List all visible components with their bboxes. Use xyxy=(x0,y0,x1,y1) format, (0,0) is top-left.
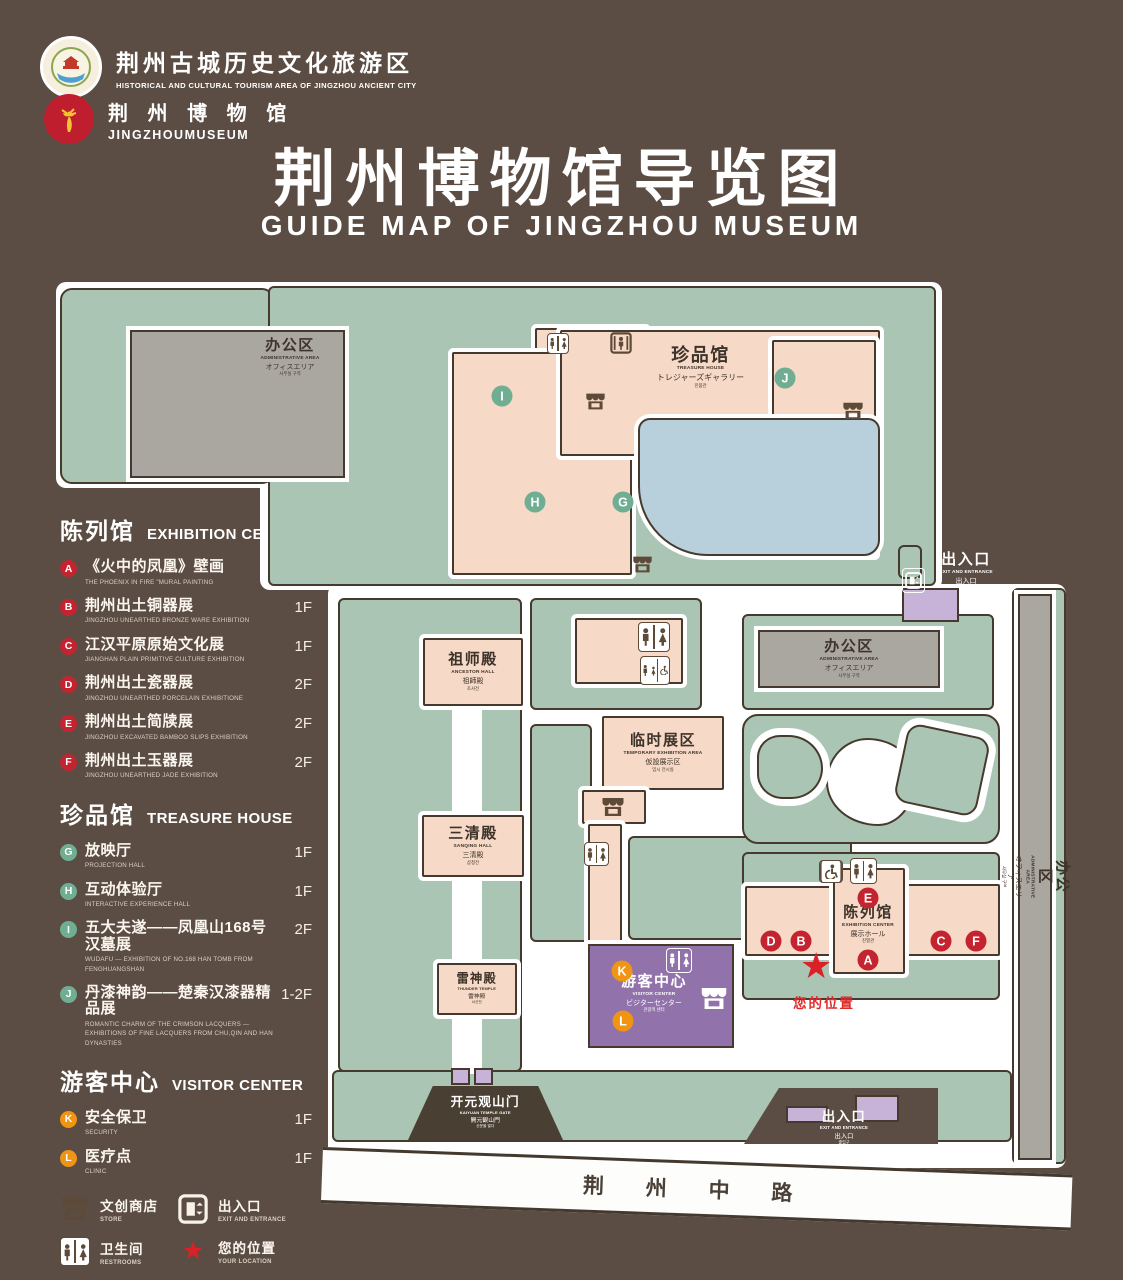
legend-item-en: INTERACTIVE EXPERIENCE HALL xyxy=(85,900,190,909)
legend-item-G: G放映厅PROJECTION HALL1F xyxy=(60,843,312,871)
building-label-cn: 出入口 xyxy=(822,1110,867,1125)
building-label-en: THUNDER TEMPLE xyxy=(458,987,497,991)
building-label-en: EXHIBITION CENTER xyxy=(842,923,894,928)
building-label-cn: 办公区 xyxy=(1036,855,1070,898)
building-label-cn: 三清殿 xyxy=(448,826,498,843)
garden-islet-left xyxy=(757,735,823,799)
map-marker-F: F xyxy=(966,931,987,952)
restroom-icon xyxy=(850,858,877,884)
thunder-temple: 雷神殿THUNDER TEMPLE雷神殿뇌신전 xyxy=(437,963,517,1015)
building-label-jp: オフィスエリア xyxy=(1006,855,1022,898)
building-label-cn: 珍品馆 xyxy=(671,345,730,365)
legend-item-J: J丹漆神韵——楚秦汉漆器精品展ROMANTIC CHARM OF THE CRI… xyxy=(60,985,312,1048)
family-restroom-icon xyxy=(640,656,670,685)
legend-icon-cn: 出入口 xyxy=(218,1195,286,1215)
legend-icon-cn: 文创商店 xyxy=(100,1195,158,1215)
kaiyuan-temple-gate: 开元观山门KAIYUAN TEMPLE GATE開元観山門산문을 열다 xyxy=(408,1086,563,1140)
map-marker-L: L xyxy=(613,1011,634,1032)
legend-item-en: PROJECTION HALL xyxy=(85,861,145,870)
building-label-en: KAIYUAN TEMPLE GATE xyxy=(460,1111,511,1116)
garden-islet-right xyxy=(893,722,992,818)
legend-item-L: L医疗点CLINIC1F xyxy=(60,1149,312,1177)
legend-item-floor: 2F xyxy=(294,921,312,938)
building-label-en: TEMPORARY EXHIBITION AREA xyxy=(624,751,703,756)
map-marker-B: B xyxy=(791,931,812,952)
legend-icon-cn: 您的位置 xyxy=(218,1237,276,1257)
admin-building-right: 办公区ADMINISTRATIVE AREAオフィスエリア사무실 구역 xyxy=(758,630,940,688)
legend-item-en: JINGZHOU UNEARTHED BRONZE WARE EXHIBITIO… xyxy=(85,616,249,625)
map-marker-H: H xyxy=(525,492,546,513)
page-title-cn: 荆州博物馆导览图 xyxy=(0,128,1123,218)
section-title-cn: 陈列馆 xyxy=(60,512,135,546)
legend-item-cn: 《火中的凤凰》壁画 xyxy=(85,559,225,576)
map-marker-K: K xyxy=(612,961,633,982)
building-label-en: SANQING HALL xyxy=(454,844,493,849)
legend-item-D: D荆州出土瓷器展JINGZHOU UNEARTHED PORCELAIN EXH… xyxy=(60,675,312,703)
building-label-cn: 开元观山门 xyxy=(451,1096,520,1110)
legend-item-cn: 荆州出土简牍展 xyxy=(85,714,248,731)
building-label-en: ANCESTOR HALL xyxy=(451,670,495,675)
restroom-icon xyxy=(547,333,569,354)
thunder-temple-label: 雷神殿THUNDER TEMPLE雷神殿뇌신전 xyxy=(457,973,498,1005)
your-location-label: 您的位置 xyxy=(778,992,870,1012)
museum-name-cn: 荆 州 博 物 馆 xyxy=(108,97,293,126)
restroom-icon xyxy=(584,842,609,866)
temporary-exhibition-area: 临时展区TEMPORARY EXHIBITION AREA仮設展示区임시 전시실 xyxy=(602,716,724,790)
visitor-center-label: 游客中心VISITOR CENTERビジターセンター관광객 센터 xyxy=(598,974,710,1013)
building-label-en: TREASURE HOUSE xyxy=(677,366,725,371)
legend-marker-E: E xyxy=(60,715,77,732)
map-marker-G: G xyxy=(613,492,634,513)
tourism-area-name-cn: 荆州古城历史文化旅游区 xyxy=(116,44,417,78)
legend-item-floor: 1F xyxy=(294,1150,312,1167)
your-location-star: ★ xyxy=(800,948,832,984)
building-label-kr: 조사전 xyxy=(467,687,479,692)
legend-marker-C: C xyxy=(60,638,77,655)
legend-icon-item-exit: 出入口EXIT AND ENTRANCE xyxy=(178,1194,286,1223)
legend-item-en: JIANGHAN PLAIN PRIMITIVE CULTURE EXHIBIT… xyxy=(85,655,244,664)
restroom-icon xyxy=(60,1237,90,1266)
walkway xyxy=(452,874,482,967)
pond xyxy=(638,418,880,556)
store-icon xyxy=(585,391,606,411)
legend-item-en: SECURITY xyxy=(85,1128,147,1137)
legend-marker-D: D xyxy=(60,676,77,693)
restroom-icon xyxy=(638,622,670,652)
building-label-kr: 출입구 xyxy=(839,1141,850,1145)
building-label-en: ADMINISTRATIVE AREA xyxy=(261,356,320,361)
legend-item-floor: 2F xyxy=(294,754,312,771)
exit-icon xyxy=(902,568,925,593)
legend-item-floor: 2F xyxy=(294,715,312,732)
legend-item-C: C江汉平原原始文化展JIANGHAN PLAIN PRIMITIVE CULTU… xyxy=(60,637,312,665)
gate-pillar xyxy=(451,1068,470,1085)
admin-building-strip: 办公区ADMINISTRATIVE AREAオフィスエリア사무실 구역 xyxy=(1018,594,1052,1160)
legend-item-F: F荆州出土玉器展JINGZHOU UNEARTHED JADE EXHIBITI… xyxy=(60,753,312,781)
legend-marker-H: H xyxy=(60,883,77,900)
legend-item-E: E荆州出土简牍展JINGZHOU EXCAVATED BAMBOO SLIPS … xyxy=(60,714,312,742)
building-label-kr: 사무실 구역 xyxy=(838,674,859,679)
admin-label: 办公区ADMINISTRATIVE AREAオフィスエリア사무실 구역 xyxy=(1000,855,1069,898)
elevator-icon xyxy=(610,332,632,353)
legend-item-cn: 荆州出土铜器展 xyxy=(85,598,249,615)
legend-item-en: ROMANTIC CHARM OF THE CRIMSON LACQUERS —… xyxy=(85,1020,278,1048)
building-label-kr: 진열관 xyxy=(862,939,874,944)
sanqing-hall: 三清殿SANQING HALL三清殿삼청전 xyxy=(422,815,524,877)
legend-marker-B: B xyxy=(60,599,77,616)
legend-item-en: THE PHOENIX IN FIRE "MURAL PAINTING xyxy=(85,578,225,587)
legend-item-cn: 荆州出土玉器展 xyxy=(85,753,218,770)
legend-item-floor: 1-2F xyxy=(281,986,312,1003)
building-label-kr: 진품관 xyxy=(694,384,706,389)
legend-item-floor: 1F xyxy=(294,883,312,900)
legend-section-header: 游客中心VISITOR CENTER xyxy=(60,1063,312,1097)
admin-label: 办公区ADMINISTRATIVE AREAオフィスエリア사무실 구역 xyxy=(240,338,340,377)
building-label-en: EXIT AND ENTRANCE xyxy=(939,570,993,575)
poster: 荆州古城历史文化旅游区 HISTORICAL AND CULTURAL TOUR… xyxy=(0,0,1123,1280)
store-icon xyxy=(700,985,728,1012)
map-marker-E: E xyxy=(858,888,879,909)
legend-item-cn: 荆州出土瓷器展 xyxy=(85,675,243,692)
treasure-house-label: 珍品馆TREASURE HOUSEトレジャーズギャラリー진품관 xyxy=(608,345,793,389)
legend-marker-G: G xyxy=(60,844,77,861)
temporary-exhibition-label: 临时展区TEMPORARY EXHIBITION AREA仮設展示区임시 전시실 xyxy=(624,733,703,772)
building-label-kr: 산문을 열다 xyxy=(476,1125,494,1129)
page-title-en: GUIDE MAP OF JINGZHOU MUSEUM xyxy=(0,210,1123,242)
store-icon xyxy=(632,554,653,574)
building-label-en: ADMINISTRATIVE AREA xyxy=(1024,855,1035,898)
legend-item-cn: 互动体验厅 xyxy=(85,882,190,899)
legend-item-cn: 五大夫遂——凤凰山168号汉墓展 xyxy=(85,920,278,953)
legend-marker-J: J xyxy=(60,986,77,1003)
legend-sidebar: 陈列馆EXHIBITION CENTERA《火中的凤凰》壁画THE PHOENI… xyxy=(60,497,312,1280)
legend-item-en: JINGZHOU UNEARTHED JADE EXHIBITION xyxy=(85,771,218,780)
legend-item-cn: 放映厅 xyxy=(85,843,145,860)
map-marker-C: C xyxy=(931,931,952,952)
tourism-area-logo-icon xyxy=(40,36,102,98)
section-title-cn: 珍品馆 xyxy=(60,796,135,830)
legend-sections: 陈列馆EXHIBITION CENTERA《火中的凤凰》壁画THE PHOENI… xyxy=(60,512,312,1176)
legend-icon-en: YOUR LOCATION xyxy=(218,1259,276,1265)
building-label-kr: 임시 전시실 xyxy=(652,768,673,773)
legend-icon-en: EXIT AND ENTRANCE xyxy=(218,1217,286,1223)
admin-label: 办公区ADMINISTRATIVE AREAオフィスエリア사무실 구역 xyxy=(820,639,879,678)
legend-item-en: CLINIC xyxy=(85,1167,132,1176)
legend-item-cn: 医疗点 xyxy=(85,1149,132,1166)
building-label-kr: 사무실 구역 xyxy=(279,372,300,377)
building-label-jp: 三清殿 xyxy=(462,852,483,860)
legend-section-header: 珍品馆TREASURE HOUSE xyxy=(60,796,312,830)
legend-marker-K: K xyxy=(60,1111,77,1128)
legend-marker-L: L xyxy=(60,1150,77,1167)
building-label-cn: 祖师殿 xyxy=(448,652,498,669)
legend-item-floor: 1F xyxy=(294,1111,312,1128)
legend-item-I: I五大夫遂——凤凰山168号汉墓展WUDAFU — EXHIBITION OF … xyxy=(60,920,312,974)
road-label: 荆 州 中 路 xyxy=(582,1170,810,1208)
north-gate-structure xyxy=(902,588,959,622)
building-label-kr: 사무실 구역 xyxy=(1000,866,1005,887)
legend-icon-en: RESTROOMS xyxy=(100,1260,144,1266)
legend-item-cn: 丹漆神韵——楚秦汉漆器精品展 xyxy=(85,985,278,1018)
legend-item-H: H互动体验厅INTERACTIVE EXPERIENCE HALL1F xyxy=(60,882,312,910)
legend-item-cn: 安全保卫 xyxy=(85,1110,147,1127)
building-label-cn: 雷神殿 xyxy=(457,973,498,987)
legend-icon-item-store: 文创商店STORE xyxy=(60,1194,158,1223)
gate-pillar xyxy=(474,1068,493,1085)
building-label-kr: 출입구 xyxy=(960,586,972,591)
exit-entrance-bottom: 出入口EXIT AND ENTRANCE出入口출입구 xyxy=(798,1108,890,1147)
store-icon xyxy=(842,400,864,421)
store-icon xyxy=(60,1194,90,1223)
legend-marker-I: I xyxy=(60,921,77,938)
legend-icon-grid: 文创商店STORE出入口EXIT AND ENTRANCE卫生间RESTROOM… xyxy=(60,1194,312,1280)
sanqing-hall-label: 三清殿SANQING HALL三清殿삼청전 xyxy=(448,826,498,865)
building-label-cn: 办公区 xyxy=(824,639,874,656)
tourism-area-logo: 荆州古城历史文化旅游区 HISTORICAL AND CULTURAL TOUR… xyxy=(40,36,417,98)
legend-icon-item-restroom: 卫生间RESTROOMS xyxy=(60,1237,144,1266)
store-icon xyxy=(601,795,625,818)
accessible-elevator-icon xyxy=(819,860,843,883)
building-label-en: ADMINISTRATIVE AREA xyxy=(820,657,879,662)
building-label-jp: トレジャーズギャラリー xyxy=(657,374,744,383)
ancestor-hall-label: 祖师殿ANCESTOR HALL祖師殿조사전 xyxy=(448,652,498,691)
map-marker-J: J xyxy=(775,368,796,389)
building-label-kr: 관광객 센터 xyxy=(643,1008,664,1013)
building-label-kr: 삼청전 xyxy=(467,861,479,866)
exit-entrance-top: 出入口EXIT AND ENTRANCE出入口출입구 xyxy=(920,552,1012,591)
walkway xyxy=(452,703,482,819)
map-marker-I: I xyxy=(492,386,513,407)
legend-icon-cn: 卫生间 xyxy=(100,1238,144,1258)
section-title-en: VISITOR CENTER xyxy=(172,1077,303,1094)
building-label-jp: オフィスエリア xyxy=(825,665,874,673)
building-label-en: EXIT AND ENTRANCE xyxy=(820,1126,868,1131)
building-label-kr: 뇌신전 xyxy=(472,1001,482,1005)
legend-item-en: WUDAFU — EXHIBITION OF NO.168 HAN TOMB F… xyxy=(85,955,278,974)
building-label-jp: 祖師殿 xyxy=(462,678,483,686)
building-label-en: VISITOR CENTER xyxy=(633,992,676,997)
legend-marker-A: A xyxy=(60,560,77,577)
tourism-area-name-en: HISTORICAL AND CULTURAL TOURISM AREA OF … xyxy=(116,81,417,90)
legend-item-en: JINGZHOU UNEARTHED PORCELAIN EXHIBITIONE xyxy=(85,694,243,703)
exit-top-label: 出入口EXIT AND ENTRANCE出入口출입구 xyxy=(920,552,1012,591)
building-label-cn: 临时展区 xyxy=(630,733,696,750)
building-label-cn: 办公区 xyxy=(265,338,315,355)
restroom-icon xyxy=(666,948,692,973)
legend-icon-item-star: ★您的位置YOUR LOCATION xyxy=(178,1237,276,1265)
legend-icon-en: STORE xyxy=(100,1217,158,1223)
kaiyuan-gate-label: 开元观山门KAIYUAN TEMPLE GATE開元観山門산문을 열다 xyxy=(451,1096,520,1129)
walkway xyxy=(452,1012,482,1074)
legend-item-floor: 1F xyxy=(294,844,312,861)
legend-item-en: JINGZHOU EXCAVATED BAMBOO SLIPS EXHIBITI… xyxy=(85,733,248,742)
map-marker-D: D xyxy=(761,931,782,952)
section-title-cn: 游客中心 xyxy=(60,1063,160,1097)
legend-item-K: K安全保卫SECURITY1F xyxy=(60,1110,312,1138)
building-label-cn: 出入口 xyxy=(941,552,991,569)
legend-item-B: B荆州出土铜器展JINGZHOU UNEARTHED BRONZE WARE E… xyxy=(60,598,312,626)
map-marker-A: A xyxy=(858,950,879,971)
legend-item-floor: 1F xyxy=(294,599,312,616)
exit-icon xyxy=(178,1194,208,1223)
building-label-jp: 仮設展示区 xyxy=(645,759,680,767)
ancestor-hall: 祖师殿ANCESTOR HALL祖師殿조사전 xyxy=(423,638,523,706)
section-title-en: TREASURE HOUSE xyxy=(147,810,293,827)
legend-marker-F: F xyxy=(60,754,77,771)
exit-bottom-label: 出入口EXIT AND ENTRANCE出入口출입구 xyxy=(803,1110,886,1145)
legend-item-floor: 2F xyxy=(294,676,312,693)
legend-item-floor: 1F xyxy=(294,638,312,655)
admin-building-top-left: 办公区ADMINISTRATIVE AREAオフィスエリア사무실 구역 xyxy=(130,330,345,478)
exhibition-center-label: 陈列馆EXHIBITION CENTER展示ホール진열관 xyxy=(802,905,934,944)
legend-item-cn: 江汉平原原始文化展 xyxy=(85,637,244,654)
lawn-center-strip xyxy=(530,724,592,942)
your-location-icon: ★ xyxy=(178,1238,208,1264)
